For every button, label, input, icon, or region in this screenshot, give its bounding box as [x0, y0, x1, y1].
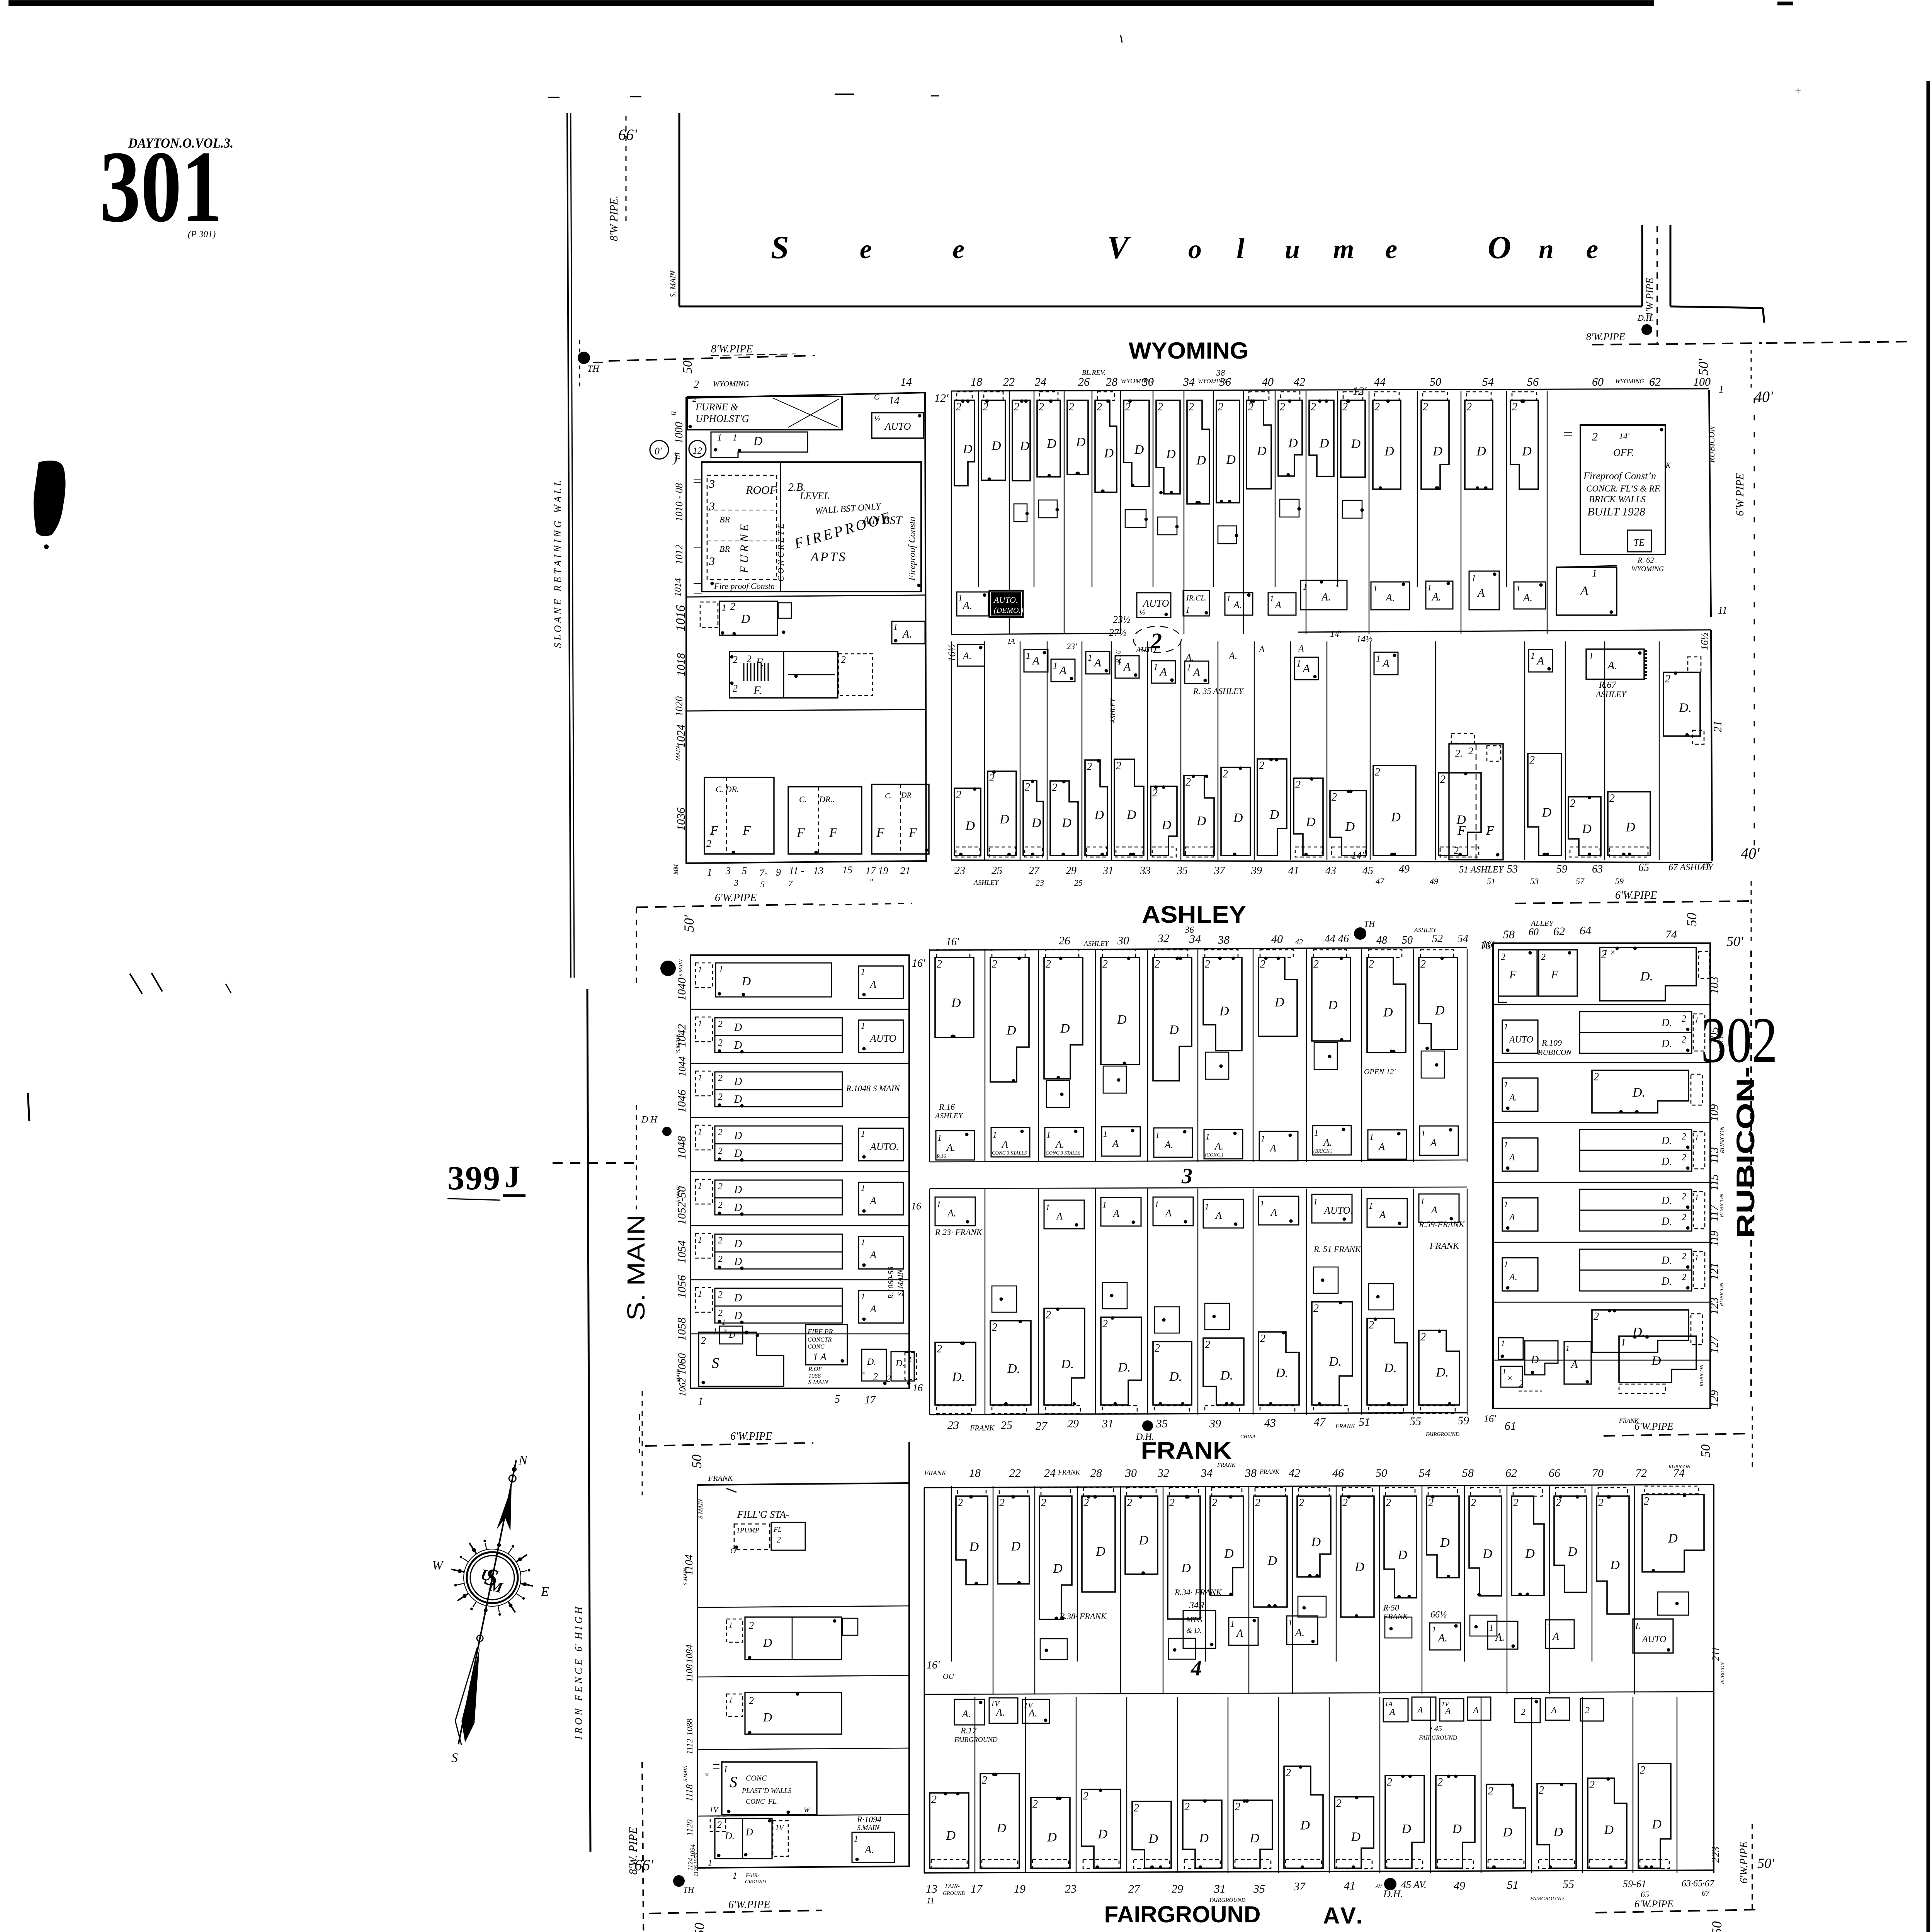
svg-text:F: F	[829, 826, 838, 840]
svg-text:2: 2	[1640, 1764, 1645, 1776]
svg-text:63: 63	[1592, 863, 1603, 875]
svg-text:1: 1	[1516, 583, 1520, 593]
svg-text:D: D	[763, 1710, 772, 1724]
svg-text:FRANK: FRANK	[1335, 1423, 1355, 1430]
svg-text:J: J	[505, 1160, 520, 1194]
svg-text:FAIRGROUND: FAIRGROUND	[1418, 1735, 1458, 1741]
svg-text:4'W PIPE: 4'W PIPE	[1644, 277, 1655, 317]
svg-text:2: 2	[733, 654, 738, 665]
svg-text:D.: D.	[1007, 1362, 1020, 1376]
svg-text:S. MAIN: S. MAIN	[896, 1269, 905, 1296]
svg-text:(P 301): (P 301)	[188, 230, 216, 240]
svg-text:7: 7	[788, 879, 793, 888]
svg-text:14½: 14½	[1356, 634, 1372, 645]
svg-text:2: 2	[1052, 782, 1057, 794]
svg-text:D: D	[1482, 1547, 1492, 1561]
svg-text:28: 28	[1106, 376, 1117, 388]
svg-text:1V: 1V	[1441, 1700, 1450, 1708]
svg-text:2: 2	[1519, 1378, 1524, 1389]
svg-text:17: 17	[865, 1394, 876, 1406]
svg-text:F: F	[796, 826, 805, 840]
svg-text:1108: 1108	[685, 1664, 695, 1682]
svg-text:A: A	[1382, 657, 1390, 670]
svg-text:1: 1	[729, 1621, 733, 1629]
svg-text:A.: A.	[1164, 1139, 1173, 1150]
svg-text:1: 1	[1504, 1022, 1508, 1031]
svg-text:CONC 3 STALLS: CONC 3 STALLS	[992, 1150, 1027, 1156]
svg-text:2: 2	[1155, 1342, 1160, 1354]
svg-text:2: 2	[718, 1200, 723, 1210]
svg-text:2: 2	[1259, 760, 1264, 772]
svg-text:17 19: 17 19	[866, 865, 888, 876]
svg-text:A.: A.	[1607, 659, 1617, 672]
svg-text:R.34· FRANK: R.34· FRANK	[1174, 1587, 1222, 1597]
svg-text:2: 2	[1299, 1497, 1304, 1509]
svg-text:FAIR-: FAIR-	[945, 1883, 960, 1889]
svg-text:2: 2	[749, 1695, 754, 1706]
svg-text:16': 16'	[1484, 1413, 1496, 1424]
svg-text:2: 2	[1169, 1497, 1175, 1509]
svg-text:WYOMING: WYOMING	[1631, 565, 1664, 573]
svg-text:2: 2	[1046, 958, 1051, 970]
svg-text:S MAIN: S MAIN	[682, 1765, 688, 1782]
svg-text:WYOMING: WYOMING	[713, 380, 749, 388]
svg-text:1: 1	[861, 1291, 865, 1301]
svg-text:IA: IA	[1007, 637, 1015, 646]
svg-text:127: 127	[1708, 1335, 1721, 1354]
svg-text:2: 2	[777, 1535, 781, 1544]
svg-text:2: 2	[1644, 1495, 1649, 1507]
svg-text:40': 40'	[1741, 845, 1760, 862]
svg-text:D: D	[1553, 1825, 1563, 1839]
svg-text:ROOF: ROOF	[745, 484, 777, 497]
svg-text:1: 1	[1695, 1253, 1699, 1262]
svg-text:2: 2	[692, 394, 697, 404]
svg-text:1: 1	[893, 622, 898, 632]
svg-text:D: D	[1199, 1831, 1209, 1845]
svg-text:1: 1	[1589, 651, 1594, 662]
svg-text:1: 1	[707, 867, 712, 878]
svg-text:RUBICON: RUBICON	[1699, 1364, 1704, 1387]
svg-text:1: 1	[1504, 1259, 1508, 1269]
svg-text:& D.: & D.	[1186, 1626, 1202, 1635]
svg-text:F: F	[742, 823, 751, 838]
svg-text:2: 2	[1374, 401, 1380, 413]
svg-text:1: 1	[698, 1289, 702, 1299]
svg-text:1: 1	[1369, 1201, 1373, 1211]
svg-text:24: 24	[1035, 376, 1046, 388]
svg-text:1112: 1112	[685, 1739, 694, 1755]
svg-text:1: 1	[1270, 594, 1274, 603]
svg-text:2: 2	[1125, 401, 1131, 413]
svg-text:A: A	[1552, 1631, 1560, 1643]
svg-text:6'W.PIPE: 6'W.PIPE	[1634, 1898, 1673, 1910]
svg-text:BRICK WALLS: BRICK WALLS	[1589, 495, 1646, 505]
svg-text:D.: D.	[1661, 1017, 1672, 1029]
svg-text:D: D	[1440, 1536, 1450, 1550]
svg-text:23: 23	[954, 865, 965, 877]
svg-text:50': 50'	[1757, 1855, 1775, 1871]
svg-text:A.: A.	[1385, 592, 1395, 604]
svg-text:34R: 34R	[1189, 1600, 1204, 1611]
svg-text:2: 2	[1466, 401, 1472, 413]
svg-text:2: 2	[706, 838, 711, 849]
svg-text:2: 2	[730, 601, 735, 612]
svg-text:8'W.PIPE: 8'W.PIPE	[711, 343, 753, 355]
svg-text:D: D	[1060, 1022, 1070, 1036]
svg-text:1: 1	[1376, 654, 1381, 664]
svg-text:2: 2	[1260, 958, 1265, 970]
svg-text:IR.CL.: IR.CL.	[1186, 594, 1207, 602]
svg-text:R.59-FRANK: R.59-FRANK	[1418, 1219, 1465, 1229]
svg-text:D: D	[1319, 436, 1329, 451]
svg-text:ASHLEY: ASHLEY	[973, 879, 999, 886]
svg-text:26: 26	[1059, 934, 1070, 947]
svg-text:D: D	[1288, 436, 1298, 451]
svg-text:2: 2	[1589, 1779, 1595, 1791]
svg-text:A.: A.	[1294, 1627, 1304, 1639]
svg-text:50: 50	[1376, 1467, 1387, 1480]
svg-text:60: 60	[1529, 926, 1539, 937]
svg-text:A.: A.	[962, 600, 972, 612]
svg-text:2: 2	[1369, 958, 1374, 970]
svg-text:R. 35 ASHLEY: R. 35 ASHLEY	[1193, 686, 1245, 696]
svg-text:1V: 1V	[1024, 1701, 1034, 1710]
svg-text:8'W PIPE.: 8'W PIPE.	[608, 196, 620, 241]
svg-text:2: 2	[1205, 1339, 1210, 1351]
svg-text:50: 50	[1684, 913, 1699, 927]
svg-text:1: 1	[993, 1130, 997, 1139]
svg-text:27½: 27½	[1109, 627, 1127, 638]
svg-text:A: A	[1236, 1628, 1243, 1639]
svg-text:1: 1	[1153, 662, 1158, 672]
svg-text:62: 62	[1553, 925, 1565, 938]
svg-text:121: 121	[1708, 1263, 1721, 1280]
svg-text:A: A	[869, 979, 876, 990]
svg-text:D: D	[1196, 453, 1206, 468]
svg-text:53: 53	[1507, 863, 1518, 875]
svg-text:39: 39	[1251, 865, 1262, 877]
svg-text:2: 2	[1501, 952, 1505, 962]
svg-text:43: 43	[1264, 1417, 1276, 1429]
svg-text:D: D	[1104, 446, 1114, 461]
svg-text:D.: D.	[952, 1370, 965, 1384]
svg-text:2: 2	[1665, 673, 1670, 685]
svg-text:A'N BST: A'N BST	[862, 514, 903, 527]
svg-text:1: 1	[1314, 1128, 1318, 1138]
svg-text:1: 1	[937, 1199, 941, 1209]
svg-text:1: 1	[1471, 573, 1476, 583]
svg-text:A.: A.	[1321, 591, 1331, 603]
svg-text:33: 33	[1139, 865, 1151, 877]
svg-text:A: A	[1580, 584, 1588, 598]
svg-text:D.: D.	[1661, 1038, 1672, 1050]
svg-text:S.MAIN: S.MAIN	[857, 1824, 879, 1832]
svg-text:2: 2	[1682, 1035, 1686, 1045]
svg-text:D: D	[1582, 822, 1592, 836]
svg-text:40: 40	[1271, 933, 1283, 946]
svg-text:18: 18	[969, 1467, 981, 1480]
svg-text:A: A	[1269, 1143, 1276, 1154]
svg-text:S MAIN: S MAIN	[697, 1498, 704, 1519]
svg-text:AUTO: AUTO	[1641, 1634, 1666, 1645]
svg-text:D.: D.	[1435, 1366, 1449, 1380]
svg-text:31: 31	[1102, 865, 1114, 877]
svg-text:5: 5	[760, 879, 765, 889]
svg-text:2: 2	[1069, 401, 1074, 413]
svg-text:FRANK: FRANK	[1217, 1462, 1236, 1468]
svg-text:D: D	[1306, 815, 1316, 829]
svg-text:1: 1	[1288, 1617, 1293, 1627]
svg-text:D.: D.	[1661, 1156, 1672, 1168]
svg-text:A.: A.	[1431, 591, 1441, 603]
svg-text:BR: BR	[719, 544, 730, 554]
svg-text:55: 55	[1410, 1415, 1421, 1428]
svg-text:2: 2	[1127, 1497, 1132, 1509]
svg-text:e: e	[1385, 235, 1397, 264]
svg-text:A: A	[1378, 1141, 1385, 1152]
svg-text:2: 2	[1342, 1497, 1348, 1509]
svg-text:S MAIN: S MAIN	[808, 1379, 828, 1386]
svg-text:CONC: CONC	[808, 1344, 825, 1350]
svg-text:AUTO: AUTO	[869, 1033, 896, 1044]
svg-text:54: 54	[1482, 376, 1494, 388]
svg-text:Fireproof Constn: Fireproof Constn	[907, 517, 917, 581]
svg-text:23': 23'	[1066, 641, 1077, 651]
svg-text:6'W.PIPE: 6'W.PIPE	[1615, 889, 1657, 901]
svg-text:R.38· FRANK: R.38· FRANK	[1059, 1611, 1107, 1621]
svg-text:F: F	[1457, 823, 1466, 838]
svg-text:D: D	[1094, 808, 1104, 822]
svg-text:2.: 2.	[1455, 748, 1463, 759]
svg-text:A.: A.	[1509, 1093, 1517, 1103]
svg-text:2: 2	[1313, 1303, 1319, 1315]
svg-text:1: 1	[1566, 1344, 1570, 1353]
svg-text:1: 1	[1155, 1130, 1160, 1140]
svg-text:2: 2	[701, 1335, 706, 1346]
svg-text:1: 1	[723, 1764, 728, 1774]
svg-text:43: 43	[1325, 865, 1336, 877]
svg-text:D: D	[1047, 1830, 1057, 1844]
svg-text:e: e	[860, 235, 872, 264]
svg-text:1010 - 08: 1010 - 08	[673, 483, 685, 522]
svg-text:2: 2	[1087, 761, 1092, 773]
svg-text:55: 55	[1563, 1878, 1574, 1891]
svg-text:31: 31	[1102, 1417, 1114, 1430]
svg-text:D: D	[1432, 444, 1442, 459]
svg-text:FL: FL	[773, 1526, 782, 1533]
svg-text:AUTO.: AUTO.	[869, 1141, 899, 1152]
svg-text:2: 2	[1218, 401, 1223, 413]
svg-text:A.: A.	[1437, 1632, 1447, 1644]
svg-text:59: 59	[1458, 1414, 1469, 1427]
svg-text:129: 129	[1708, 1390, 1721, 1408]
svg-text:25: 25	[992, 865, 1002, 877]
svg-text:+: +	[1795, 85, 1801, 97]
svg-text:A: A	[1215, 1210, 1222, 1221]
svg-text:1: 1	[1489, 1623, 1493, 1633]
svg-text:36: 36	[1184, 925, 1194, 935]
svg-text:R.1060-58: R.1060-58	[887, 1267, 895, 1299]
svg-text:1040: 1040	[675, 978, 688, 1001]
svg-text:11: 11	[1718, 605, 1727, 616]
svg-text:A: A	[1389, 1707, 1395, 1717]
svg-text:C.: C.	[799, 794, 807, 804]
svg-text:1: 1	[1421, 1128, 1425, 1138]
svg-text:R.OF: R.OF	[808, 1366, 822, 1372]
svg-text:MTG: MTG	[1186, 1616, 1203, 1624]
svg-text:A: A	[1032, 654, 1040, 667]
svg-text:2: 2	[982, 1774, 987, 1786]
svg-text:D: D	[1452, 1822, 1462, 1836]
svg-text:FRANK: FRANK	[1383, 1612, 1408, 1621]
svg-text:R·50: R·50	[1383, 1603, 1399, 1612]
svg-text:71: 71	[1699, 860, 1710, 872]
svg-text:CHINA: CHINA	[1240, 1434, 1255, 1439]
svg-text:1: 1	[698, 1019, 702, 1028]
svg-text:D.H.: D.H.	[1383, 1888, 1403, 1900]
svg-text:×: ×	[723, 1326, 728, 1336]
svg-text:29: 29	[1172, 1883, 1183, 1895]
svg-text:50': 50'	[1696, 358, 1711, 376]
svg-text:D: D	[1010, 1539, 1020, 1554]
svg-text:RUBICON: RUBICON	[1537, 1048, 1572, 1057]
svg-text:1: 1	[854, 1834, 858, 1844]
svg-text:D.H.: D.H.	[1637, 313, 1654, 323]
svg-text:FRANK: FRANK	[1429, 1241, 1460, 1251]
svg-text:D: D	[734, 1039, 742, 1051]
svg-text:46: 46	[1332, 1467, 1344, 1480]
svg-text:2: 2	[1041, 1497, 1046, 1509]
svg-text:48: 48	[1376, 934, 1387, 946]
svg-text:12': 12'	[1352, 385, 1367, 398]
svg-text:O: O	[1488, 230, 1511, 265]
svg-text:S.MAIN: S.MAIN	[675, 1033, 682, 1053]
svg-text:50: 50	[692, 1923, 707, 1932]
svg-text:1: 1	[1260, 1199, 1264, 1208]
svg-text:1018: 1018	[675, 653, 687, 676]
svg-text:D.: D.	[895, 1359, 905, 1369]
svg-text:1A: 1A	[1385, 1700, 1393, 1708]
svg-text:F.: F.	[755, 656, 764, 669]
svg-text:D: D	[1097, 1827, 1107, 1841]
svg-text:1044: 1044	[677, 1056, 688, 1077]
svg-text:D: D	[1476, 444, 1486, 459]
svg-text:D: D	[734, 1130, 742, 1142]
svg-text:R.109: R.109	[1541, 1038, 1562, 1048]
svg-text:26: 26	[1078, 376, 1090, 388]
svg-text:2: 2	[718, 1308, 723, 1318]
svg-text:2: 2	[1682, 1192, 1686, 1202]
svg-text:61: 61	[1505, 1420, 1516, 1432]
svg-text:2: 2	[718, 1146, 723, 1156]
svg-text:(CONC.): (CONC.)	[1205, 1152, 1223, 1158]
svg-text:OFF.: OFF.	[1613, 447, 1634, 458]
svg-text:CONC: CONC	[746, 1774, 767, 1782]
svg-text:2: 2	[749, 1620, 754, 1631]
svg-text:A.: A.	[947, 1207, 956, 1219]
svg-text:1016: 1016	[673, 605, 688, 631]
svg-text:3: 3	[709, 478, 715, 490]
svg-text:223: 223	[1710, 1847, 1722, 1863]
svg-text:2: 2	[1134, 1802, 1139, 1814]
svg-text:22: 22	[1009, 1467, 1021, 1480]
svg-text:2: 2	[1369, 1319, 1374, 1331]
svg-text:1: 1	[1432, 1624, 1436, 1634]
svg-text:A.: A.	[864, 1844, 874, 1856]
svg-text:2: 2	[1255, 1497, 1260, 1509]
svg-text:1: 1	[861, 1183, 865, 1193]
svg-text:2: 2	[1280, 401, 1285, 413]
svg-text:31: 31	[1214, 1883, 1226, 1895]
svg-text:FRANK: FRANK	[1619, 1418, 1639, 1424]
svg-text:D: D	[991, 439, 1001, 453]
svg-text:A: A	[1509, 1153, 1515, 1163]
svg-text:60: 60	[1592, 376, 1604, 388]
svg-text:100: 100	[1693, 376, 1711, 388]
svg-text:m: m	[1333, 235, 1354, 264]
svg-text:2: 2	[1116, 760, 1121, 772]
svg-text:D: D	[1095, 1544, 1105, 1559]
svg-text:1: 1	[1592, 568, 1597, 579]
svg-text:D: D	[1257, 444, 1267, 458]
svg-text:A: A	[1123, 660, 1131, 673]
svg-text:D.: D.	[1661, 1255, 1672, 1267]
svg-text:2: 2	[1286, 1767, 1291, 1779]
svg-text:½: ½	[874, 413, 881, 423]
svg-text:S: S	[712, 1355, 719, 1371]
svg-text:2: 2	[956, 401, 961, 413]
svg-text:38: 38	[1218, 934, 1230, 946]
svg-text:2: 2	[1375, 766, 1380, 778]
svg-text:FRANK: FRANK	[1058, 1468, 1080, 1476]
svg-text:D: D	[1269, 808, 1279, 822]
svg-text:D: D	[946, 1828, 956, 1843]
svg-text:A: A	[869, 1195, 876, 1206]
svg-text:2: 2	[1454, 845, 1459, 856]
svg-text:51: 51	[1487, 876, 1495, 886]
svg-text:AUTO: AUTO	[1509, 1035, 1533, 1045]
svg-text:2: 2	[718, 1019, 723, 1029]
svg-text:6'W.PIPE: 6'W.PIPE	[728, 1899, 770, 1911]
svg-text:27: 27	[1128, 1883, 1141, 1895]
svg-text:42: 42	[1289, 1467, 1300, 1480]
svg-text:A.: A.	[1522, 592, 1532, 604]
svg-text:D: D	[1233, 811, 1243, 825]
svg-text:16': 16'	[1482, 939, 1495, 950]
svg-text:12: 12	[693, 446, 702, 456]
svg-text:21: 21	[1711, 721, 1724, 732]
svg-text:ASHLEY: ASHLEY	[934, 1112, 963, 1120]
svg-text:R.16: R.16	[936, 1153, 946, 1159]
svg-text:1056: 1056	[675, 1275, 688, 1298]
svg-text:5: 5	[835, 1393, 840, 1405]
svg-text:R.17: R.17	[960, 1726, 977, 1735]
svg-text:16': 16'	[912, 957, 925, 969]
svg-text:FAIRGROUND: FAIRGROUND	[954, 1736, 998, 1743]
svg-text:50': 50'	[681, 915, 697, 932]
svg-text:D: D	[1345, 820, 1355, 834]
svg-text:65: 65	[1641, 1889, 1649, 1899]
svg-text:D.: D.	[1661, 1195, 1672, 1207]
svg-text:66: 66	[1549, 1467, 1560, 1480]
svg-text:1: 1	[861, 1021, 865, 1031]
svg-text:A: A	[1477, 587, 1485, 599]
svg-text:2: 2	[1468, 745, 1473, 757]
svg-text:2: 2	[1102, 1318, 1108, 1330]
svg-text:2: 2	[1025, 781, 1030, 793]
svg-text:RUBICON: RUBICON	[1707, 425, 1716, 463]
